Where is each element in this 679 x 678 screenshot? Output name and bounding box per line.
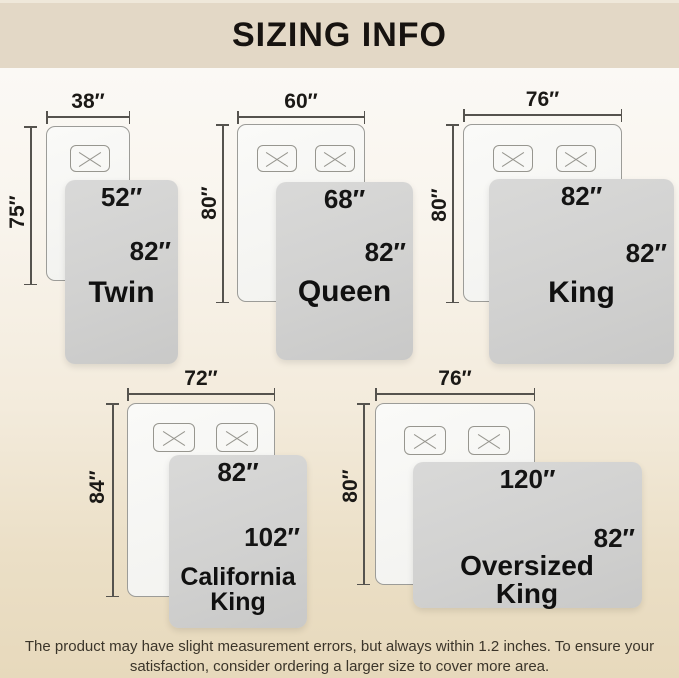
width-dimension-line: [46, 116, 130, 118]
size-name: Oversized King: [447, 552, 607, 608]
pillow-icon: [153, 423, 195, 452]
pillow-icon: [315, 145, 355, 172]
bed-width-label: 60″: [237, 90, 365, 114]
pillow-icon: [556, 145, 596, 172]
page-title: SIZING INFO: [232, 16, 447, 55]
blanket-width-label: 82″: [489, 181, 674, 212]
bed-height-label: 80″: [199, 185, 221, 221]
blanket-width-label: 68″: [276, 184, 413, 215]
pillow-icon: [216, 423, 258, 452]
disclaimer: The product may have slight measurement …: [0, 637, 679, 677]
bed-height-label: 84″: [87, 469, 109, 505]
size-name: California King: [161, 565, 315, 615]
blanket-twin: 52″ 82″ Twin: [65, 180, 178, 364]
disclaimer-line-2: satisfaction, consider ordering a larger…: [0, 657, 679, 677]
blanket-king: 82″ 82″ King: [489, 179, 674, 364]
sizing-info-page: SIZING INFO 38″ 75″ 52″ 82″ Twin 60″ 80″…: [0, 0, 679, 678]
blanket-height-label: 82″: [594, 523, 635, 554]
height-dimension-line: [112, 403, 114, 597]
pillow-icon: [70, 145, 110, 172]
pillow-icon: [404, 426, 446, 455]
pillow-icon: [493, 145, 533, 172]
blanket-oversized-king: 120″ 82″ Oversized King: [413, 462, 642, 608]
bed-height-label: 80″: [429, 187, 451, 223]
bed-width-label: 38″: [46, 90, 130, 114]
size-name: Twin: [65, 278, 178, 308]
width-dimension-line: [127, 393, 275, 395]
blanket-height-label: 82″: [130, 236, 171, 267]
pillow-icon: [468, 426, 510, 455]
disclaimer-line-1: The product may have slight measurement …: [0, 637, 679, 657]
header-band: SIZING INFO: [0, 0, 679, 68]
height-dimension-line: [30, 126, 32, 285]
size-name: King: [489, 278, 674, 308]
blanket-height-label: 82″: [365, 237, 406, 268]
height-dimension-line: [222, 124, 224, 303]
height-dimension-line: [363, 403, 365, 585]
width-dimension-line: [375, 393, 535, 395]
bed-height-label: 75″: [7, 194, 29, 230]
blanket-height-label: 82″: [626, 238, 667, 269]
bed-height-label: 80″: [340, 468, 362, 504]
bed-width-label: 76″: [463, 88, 622, 112]
blanket-height-label: 102″: [244, 522, 300, 553]
width-dimension-line: [237, 116, 365, 118]
bed-width-label: 76″: [375, 367, 535, 391]
blanket-width-label: 82″: [169, 457, 307, 488]
size-name: Queen: [276, 277, 413, 307]
blanket-width-label: 52″: [65, 182, 178, 213]
width-dimension-line: [463, 114, 622, 116]
blanket-queen: 68″ 82″ Queen: [276, 182, 413, 360]
blanket-width-label: 120″: [413, 464, 642, 495]
height-dimension-line: [452, 124, 454, 303]
bed-width-label: 72″: [127, 367, 275, 391]
pillow-icon: [257, 145, 297, 172]
blanket-california-king: 82″ 102″ California King: [169, 455, 307, 628]
